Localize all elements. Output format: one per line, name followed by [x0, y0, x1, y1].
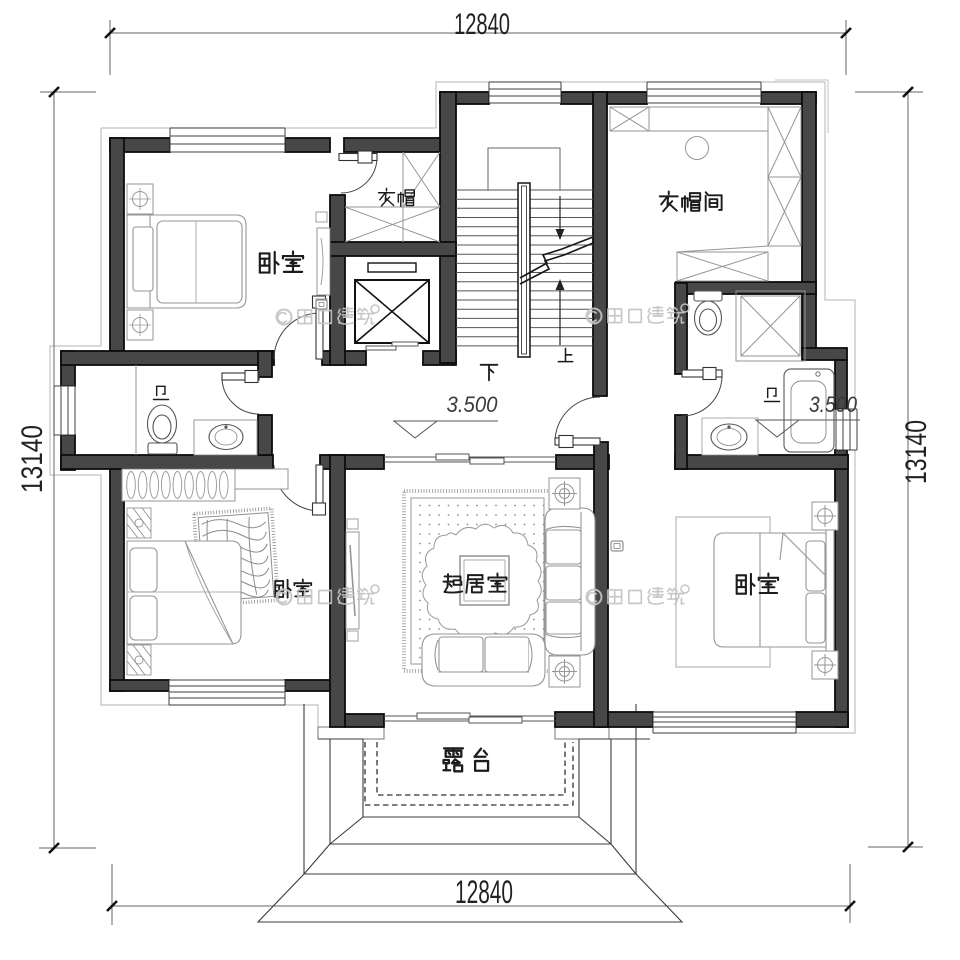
svg-text:12840: 12840 — [454, 8, 510, 41]
svg-text:12840: 12840 — [455, 874, 513, 910]
svg-text:3.500: 3.500 — [809, 392, 858, 417]
svg-text:3.500: 3.500 — [447, 392, 499, 417]
svg-text:13140: 13140 — [16, 425, 49, 493]
svg-text:13140: 13140 — [900, 420, 933, 484]
